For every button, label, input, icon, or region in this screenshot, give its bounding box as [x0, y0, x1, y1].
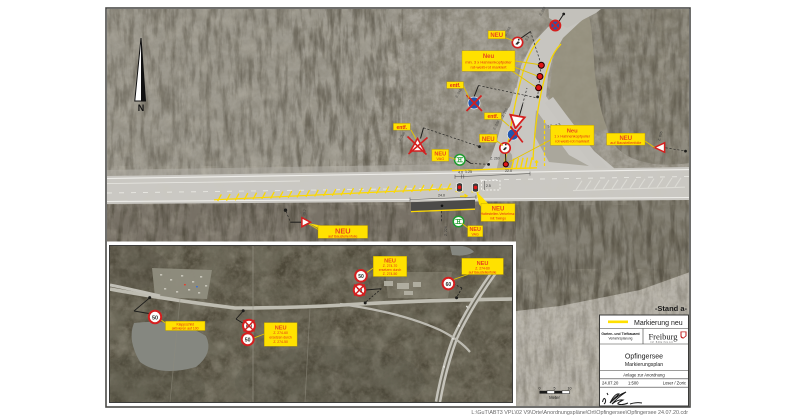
svg-text:auf Baustellenfolie: auf Baustellenfolie — [610, 141, 641, 145]
svg-text:aktivieren auf 100: aktivieren auf 100 — [172, 326, 199, 330]
svg-text:50: 50 — [245, 338, 251, 344]
svg-text:auf Baustellenfolie: auf Baustellenfolie — [469, 270, 497, 274]
svg-text:Loser / Zoric: Loser / Zoric — [663, 381, 686, 386]
svg-text:4.0: 4.0 — [458, 171, 463, 175]
svg-text:NEU: NEU — [490, 33, 503, 39]
svg-text:NEU: NEU — [482, 137, 495, 143]
svg-text:Opfingersee: Opfingersee — [625, 354, 663, 361]
svg-text:H: H — [457, 219, 461, 225]
svg-text:22.0: 22.0 — [505, 169, 512, 173]
svg-text:2.5: 2.5 — [486, 184, 491, 188]
svg-text:ersetzen durch: ersetzen durch — [269, 336, 292, 340]
svg-text:entf.: entf. — [450, 83, 461, 89]
svg-text:-Stand a-: -Stand a- — [655, 304, 688, 313]
svg-text:Z. 224: Z. 224 — [444, 226, 448, 236]
svg-text:50: 50 — [152, 316, 158, 322]
svg-text:60: 60 — [446, 282, 452, 288]
svg-text:rot-weiß-rot markiert: rot-weiß-rot markiert — [470, 65, 507, 70]
svg-text:entf.: entf. — [488, 114, 499, 120]
svg-text:10: 10 — [568, 386, 572, 390]
svg-text:Z. 274-50: Z. 274-50 — [383, 272, 398, 276]
svg-text:Verkehrsplanung: Verkehrsplanung — [609, 336, 633, 340]
svg-text:IM BREISGAU: IM BREISGAU — [650, 341, 673, 344]
svg-text:entf.: entf. — [397, 125, 408, 131]
svg-text:5: 5 — [554, 386, 556, 390]
svg-text:H: H — [458, 158, 462, 164]
svg-text:Markierung neu: Markierung neu — [634, 320, 683, 327]
svg-text:50: 50 — [358, 274, 364, 280]
svg-text:1 x Hahnenkopfpoller: 1 x Hahnenkopfpoller — [554, 135, 591, 139]
svg-text:auf Baustellenfolie: auf Baustellenfolie — [328, 235, 357, 239]
svg-text:24.07.20: 24.07.20 — [602, 381, 619, 386]
svg-text:Z. 274-50: Z. 274-50 — [273, 340, 288, 344]
svg-text:N: N — [138, 103, 145, 113]
svg-text:mit Twingo: mit Twingo — [490, 216, 506, 220]
svg-text:L:\GuT\ABT3 VPL\02 V9\Orte\Ano: L:\GuT\ABT3 VPL\02 V9\Orte\Anordnungsplä… — [471, 410, 688, 416]
svg-text:Anlage zur Anordnung: Anlage zur Anordnung — [623, 372, 665, 377]
svg-text:1.25: 1.25 — [465, 170, 472, 174]
svg-text:Neu: Neu — [567, 128, 578, 134]
svg-text:VAG: VAG — [436, 157, 444, 161]
svg-text:Z. 274-60: Z. 274-60 — [273, 331, 288, 335]
svg-text:rot-weiß-rot markiert: rot-weiß-rot markiert — [555, 139, 590, 143]
svg-text:24.0: 24.0 — [438, 193, 445, 197]
svg-text:Markierungsplan: Markierungsplan — [625, 362, 663, 368]
svg-text:0: 0 — [539, 386, 541, 390]
svg-text:Z. 260: Z. 260 — [490, 157, 500, 161]
svg-text:Meter: Meter — [549, 395, 560, 400]
svg-text:VAG: VAG — [472, 233, 480, 237]
svg-text:1:500: 1:500 — [628, 381, 639, 386]
